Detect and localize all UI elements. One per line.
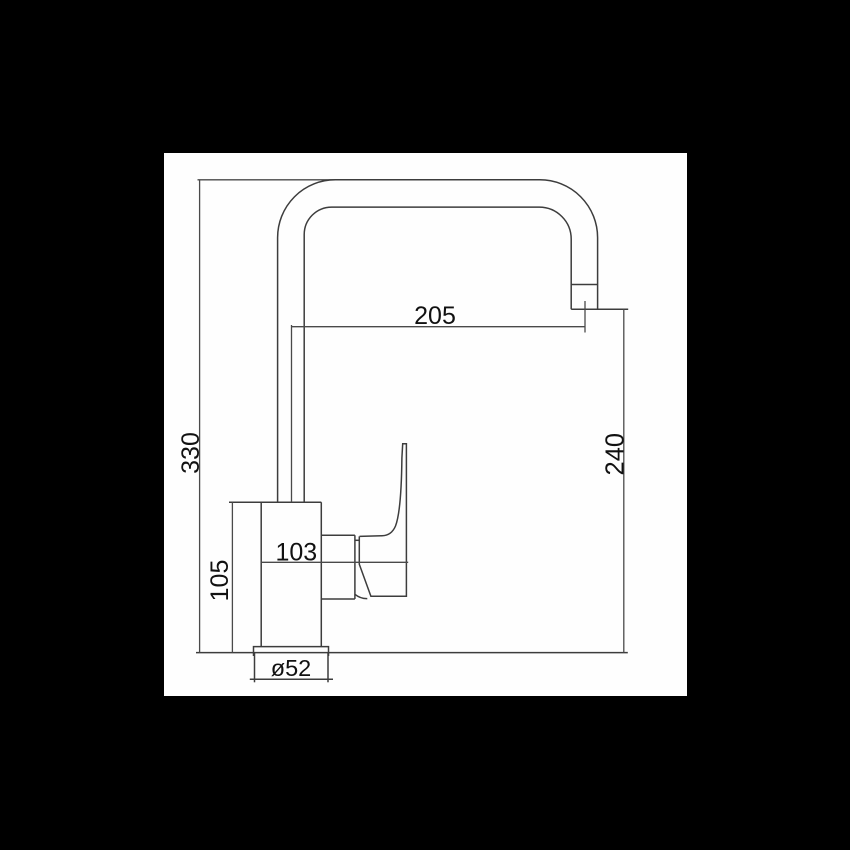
svg-text:103: 103 (275, 538, 317, 566)
svg-text:330: 330 (177, 432, 205, 474)
svg-text:205: 205 (414, 302, 456, 330)
svg-text:105: 105 (206, 560, 234, 602)
svg-text:240: 240 (601, 433, 629, 476)
svg-text:ø52: ø52 (271, 655, 312, 681)
